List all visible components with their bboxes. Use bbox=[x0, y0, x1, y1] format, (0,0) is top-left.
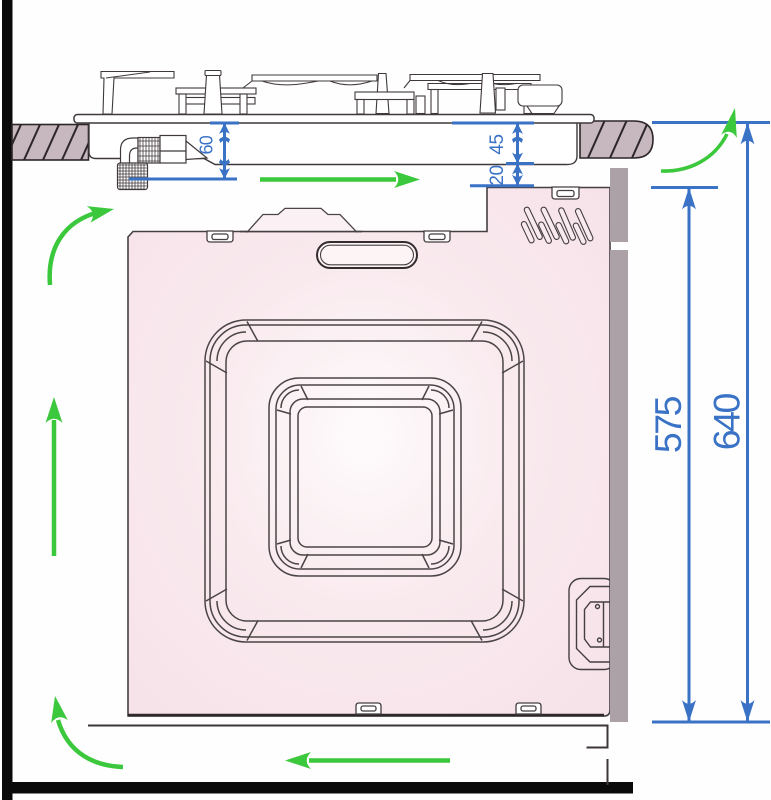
svg-text:45: 45 bbox=[487, 134, 508, 154]
svg-text:640: 640 bbox=[706, 394, 748, 451]
svg-text:20: 20 bbox=[487, 165, 508, 185]
svg-text:60: 60 bbox=[197, 135, 217, 154]
svg-text:575: 575 bbox=[647, 396, 689, 453]
